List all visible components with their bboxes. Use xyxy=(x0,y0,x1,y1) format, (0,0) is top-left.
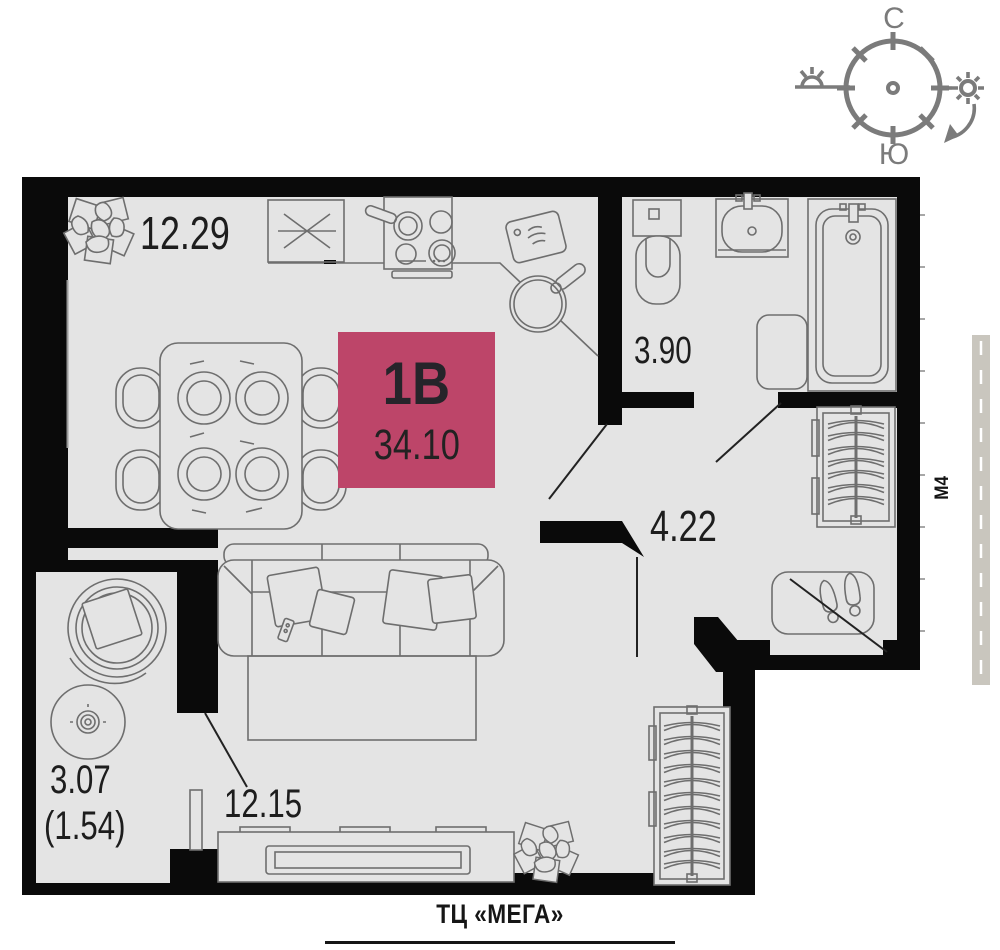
hall-wardrobe-icon xyxy=(812,406,895,527)
compass-north-label: С xyxy=(876,2,912,36)
compass-south-label: Ю xyxy=(876,138,912,172)
sun-icon xyxy=(937,72,984,104)
round-table-icon xyxy=(51,685,125,759)
bathtub-icon xyxy=(808,199,896,391)
unit-total-area: 34.10 xyxy=(373,424,459,467)
landmark-label: ТЦ «МЕГА» xyxy=(332,899,668,930)
balcony-area-label: 3.07 xyxy=(50,758,111,803)
living-wardrobe-icon xyxy=(649,706,730,885)
kitchen-area-label: 12.29 xyxy=(140,206,230,260)
bathroom-sink-icon xyxy=(716,193,788,257)
kitchen-plant-icon xyxy=(64,197,134,263)
dining-table xyxy=(160,343,302,529)
living-area-label: 12.15 xyxy=(224,782,302,827)
unit-badge: 1В 34.10 xyxy=(338,332,495,488)
sunset-icon xyxy=(795,67,850,87)
rotation-arrow-icon xyxy=(944,104,974,143)
balcony-reduced-area-label: (1.54) xyxy=(44,804,126,849)
floor-plan-svg xyxy=(0,0,1000,950)
living-plant-icon xyxy=(514,821,578,882)
road-strip xyxy=(972,335,990,685)
tv-stand-icon xyxy=(218,827,514,882)
toilet-icon xyxy=(633,200,681,304)
bathroom-area-label: 3.90 xyxy=(634,330,692,373)
floorplan-canvas: 12.29 3.90 4.22 12.15 3.07 (1.54) 1В 34.… xyxy=(0,0,1000,950)
landmark-underline xyxy=(325,941,675,944)
compass-icon xyxy=(795,32,984,144)
hallway-area-label: 4.22 xyxy=(650,502,717,552)
unit-label: 1В xyxy=(383,354,450,414)
road-label: М4 xyxy=(932,458,954,499)
